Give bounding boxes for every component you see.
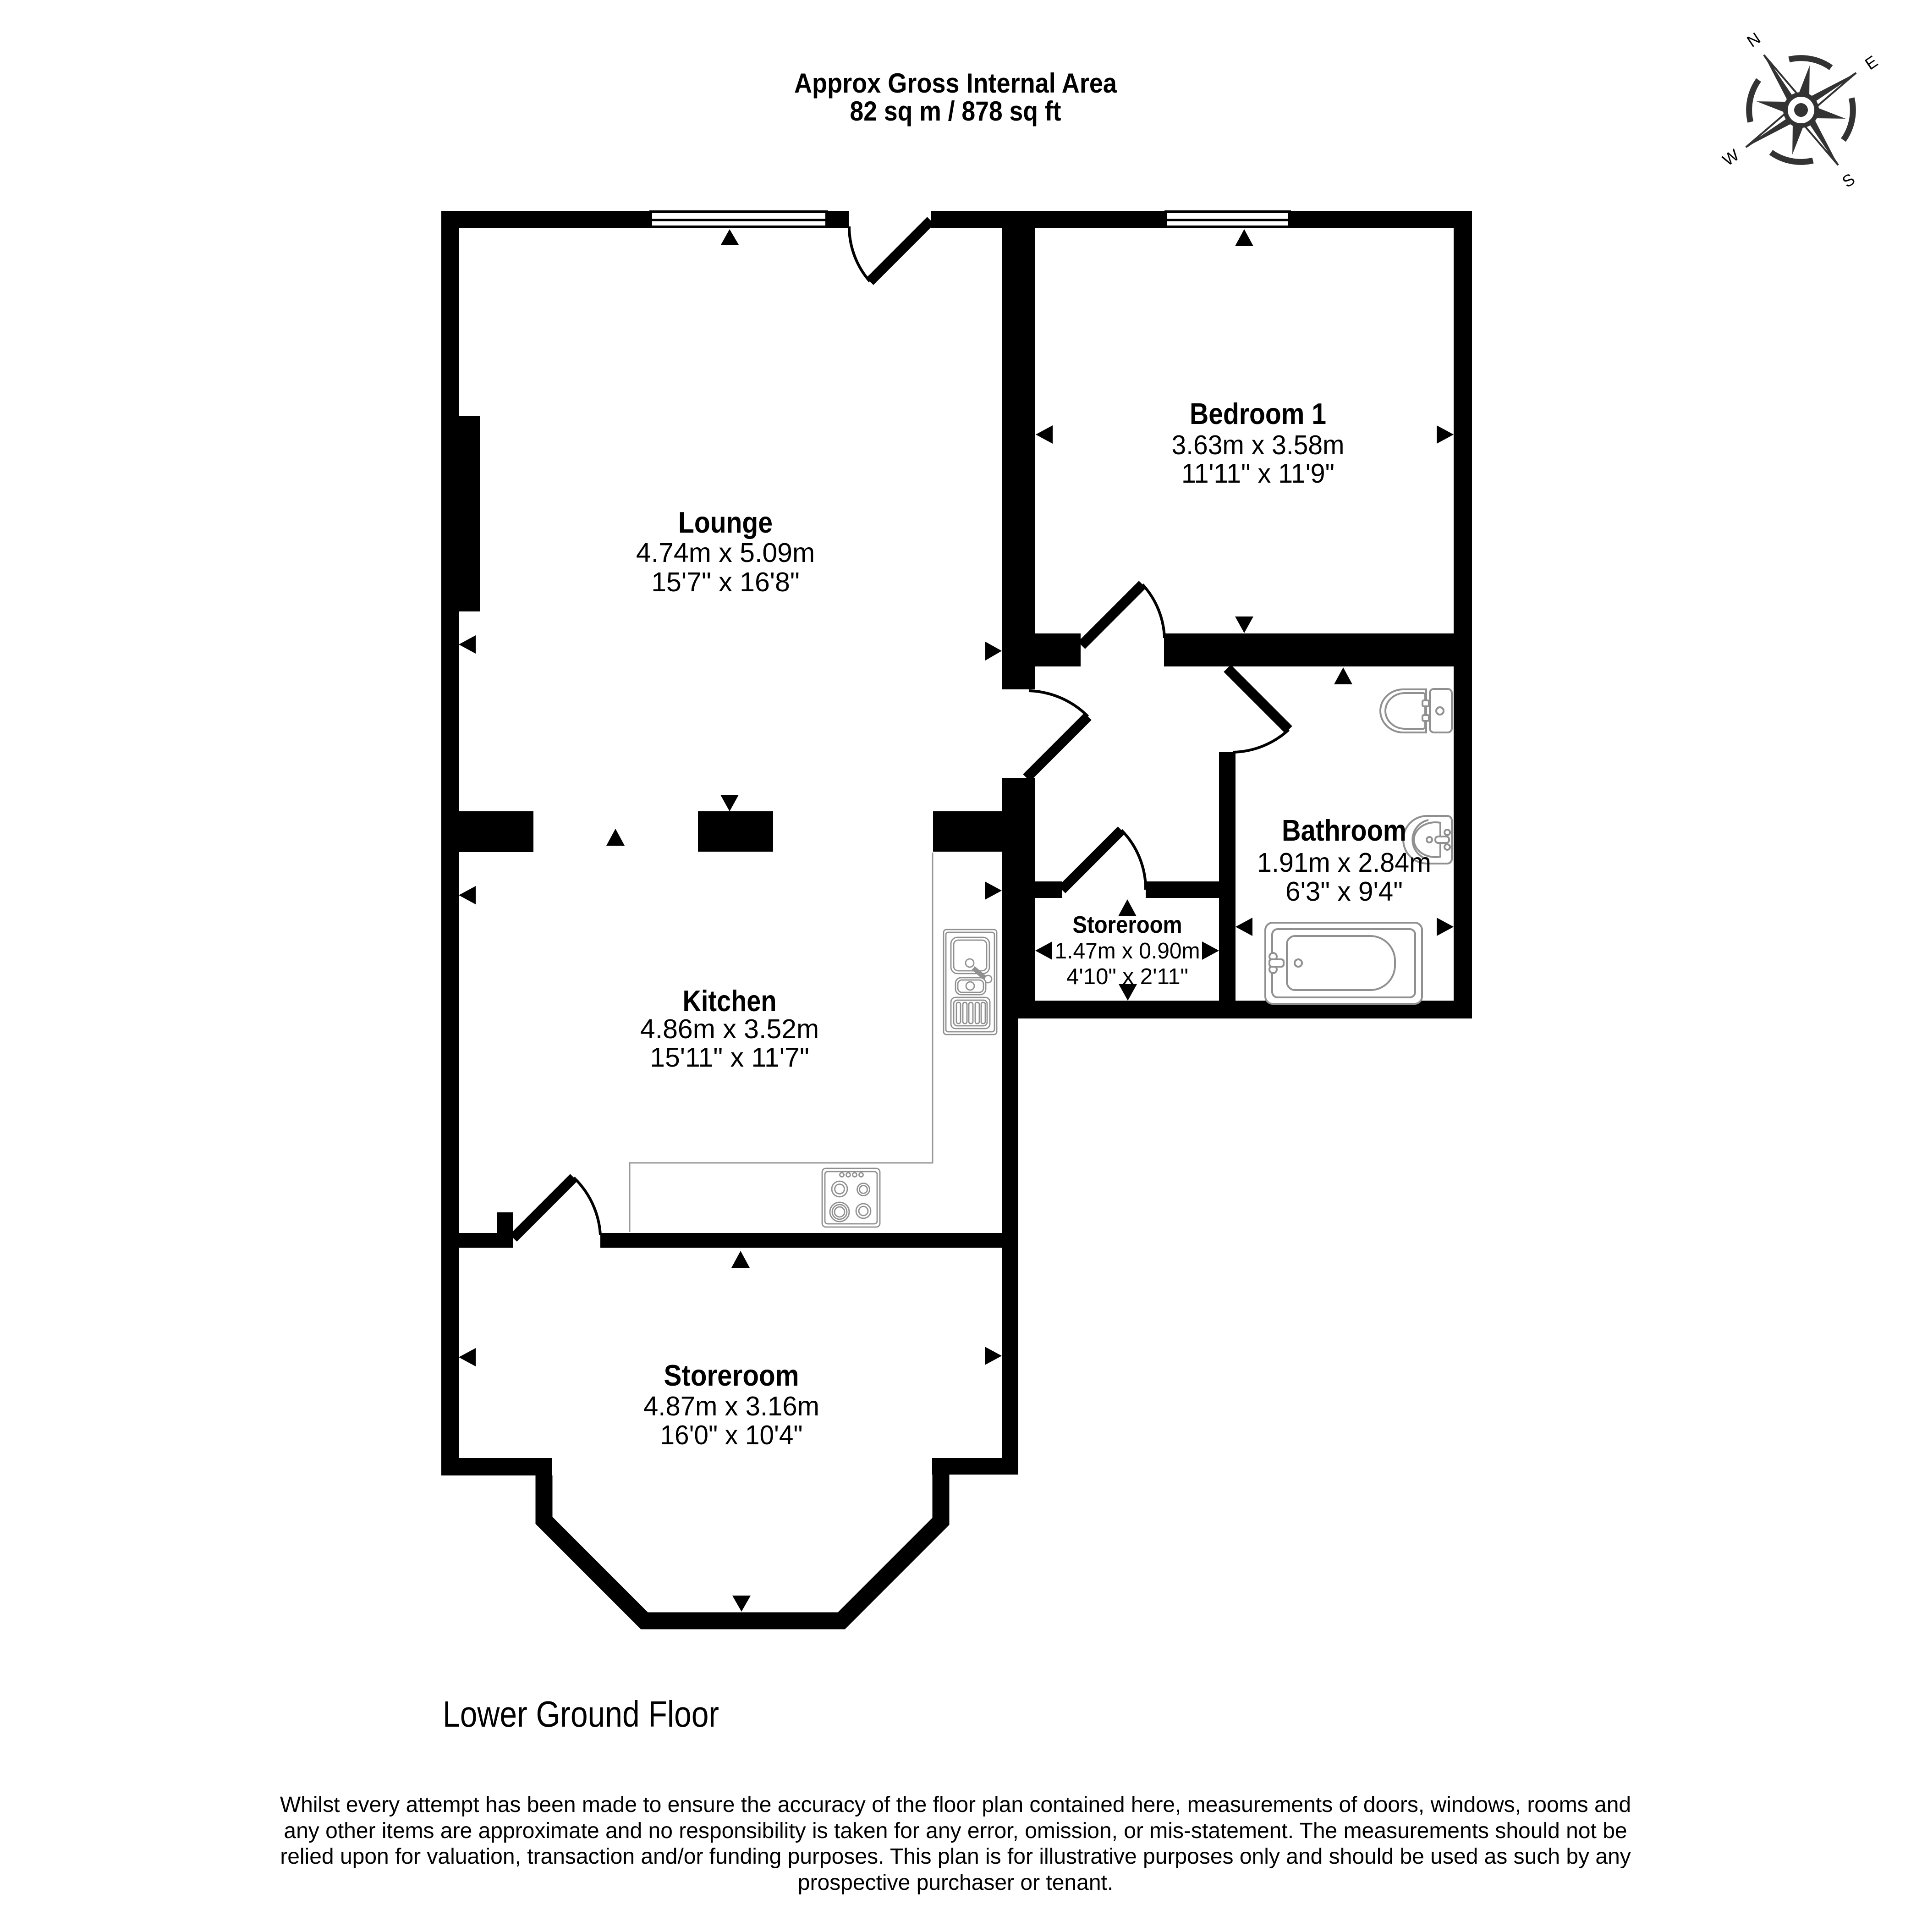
svg-text:Lower Ground Floor: Lower Ground Floor [443,1694,719,1734]
svg-text:11'11" x 11'9": 11'11" x 11'9" [1181,458,1334,489]
svg-text:prospective purchaser or tenan: prospective purchaser or tenant. [798,1871,1113,1895]
svg-text:Storeroom: Storeroom [1073,912,1182,938]
svg-text:Bathroom: Bathroom [1282,814,1406,847]
svg-text:82 sq m / 878 sq ft: 82 sq m / 878 sq ft [850,96,1061,127]
svg-text:15'11" x 11'7": 15'11" x 11'7" [650,1042,809,1073]
svg-text:Storeroom: Storeroom [664,1359,799,1392]
svg-text:4.74m x 5.09m: 4.74m x 5.09m [636,538,815,568]
svg-text:3.63m x 3.58m: 3.63m x 3.58m [1172,430,1345,460]
svg-text:6'3" x 9'4": 6'3" x 9'4" [1285,876,1403,907]
svg-text:Bedroom 1: Bedroom 1 [1190,397,1326,430]
svg-text:Lounge: Lounge [678,506,773,539]
svg-text:4'10" x 2'11": 4'10" x 2'11" [1066,964,1188,989]
svg-text:relied upon for valuation, tra: relied upon for valuation, transaction a… [280,1844,1631,1869]
svg-text:15'7" x 16'8": 15'7" x 16'8" [651,567,800,597]
svg-text:16'0" x 10'4": 16'0" x 10'4" [660,1420,803,1450]
svg-text:4.87m x 3.16m: 4.87m x 3.16m [643,1391,819,1421]
svg-text:1.91m x 2.84m: 1.91m x 2.84m [1257,848,1431,878]
svg-text:1.47m x 0.90m: 1.47m x 0.90m [1055,939,1200,963]
svg-text:Kitchen: Kitchen [683,984,777,1018]
svg-text:any other items are approximat: any other items are approximate and no r… [284,1819,1627,1843]
svg-text:Whilst every attempt has been: Whilst every attempt has been made to en… [280,1793,1631,1817]
svg-text:4.86m x 3.52m: 4.86m x 3.52m [640,1014,819,1044]
svg-text:Approx Gross Internal Area: Approx Gross Internal Area [794,68,1117,99]
